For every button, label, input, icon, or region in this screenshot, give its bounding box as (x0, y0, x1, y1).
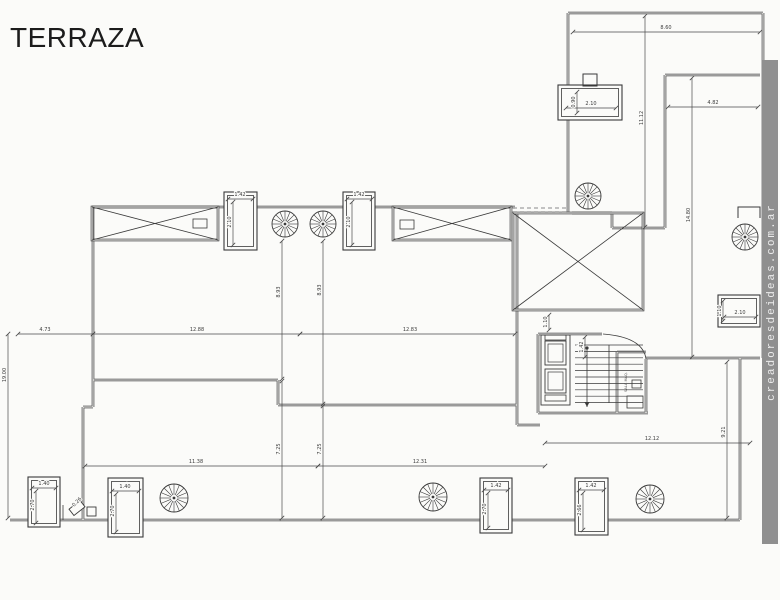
floor-plan-canvas: TERRAZA 8.604.8211.1214.802.100.902.101.… (0, 0, 780, 600)
dimension-label: 2.66 (577, 504, 583, 515)
dimension-label: 4.82 (707, 100, 718, 106)
dimension-label: 9.21 (721, 426, 727, 437)
dimension-label: 1.42 (353, 192, 364, 198)
dimension-label: 8.93 (276, 286, 282, 297)
spiral-center (432, 496, 435, 499)
rooftop-hatch (583, 74, 597, 86)
machine-room-label: SALA MAQ. (624, 372, 628, 392)
watermark-text: creadoresdeideas.com.ar (766, 203, 778, 401)
dimension-label: 8.60 (660, 25, 671, 31)
small-box (87, 507, 96, 516)
spiral-stair-icon (636, 485, 664, 513)
dimension-label: 14.80 (686, 208, 692, 222)
dimension-label: 8.93 (317, 284, 323, 295)
dimension-label: 1.42 (579, 341, 585, 352)
dimension-label: 1.42 (490, 483, 501, 489)
skylight-tab (193, 219, 207, 228)
spiral-stair-icon (160, 484, 188, 512)
dimension-label: 12.83 (403, 327, 417, 333)
machine-room-box-small (632, 380, 641, 388)
elevator-car-inner (548, 372, 563, 390)
stair-direction-start (585, 346, 588, 349)
spiral-stair-icon (732, 224, 758, 250)
elevator-car-inner (548, 344, 563, 362)
page-title: TERRAZA (10, 22, 144, 54)
dimension-label: 2.70 (110, 505, 116, 516)
walls-core-layer (10, 13, 763, 520)
floor-plan-svg: 8.604.8211.1214.802.100.902.101.101.422.… (0, 0, 780, 600)
spiral-center (587, 195, 590, 198)
spiral-center (744, 236, 747, 239)
dimension-label: 2.70 (482, 503, 488, 514)
watermark: creadoresdeideas.com.ar (762, 60, 778, 544)
machine-room-box (627, 396, 643, 408)
dimension-label: 2.10 (585, 101, 596, 107)
dimension-label: 1.42 (234, 192, 245, 198)
dimension-label: 1.10 (717, 305, 723, 316)
spiral-stair-icon (310, 211, 336, 237)
dimension-label: 2.10 (346, 216, 352, 227)
dimension-label: 2.10 (227, 216, 233, 227)
elevator-sill (545, 395, 566, 401)
dimension-label: 12.31 (413, 459, 427, 465)
spiral-center (173, 497, 176, 500)
spiral-center (284, 223, 287, 226)
stair-direction-arrow (585, 402, 590, 407)
spiral-stair-icon (575, 183, 601, 209)
dimension-label: 1.10 (543, 316, 549, 327)
stair-landing (738, 207, 760, 218)
dimension-label: 0.90 (571, 96, 577, 107)
dimension-label: 1.42 (585, 483, 596, 489)
dimension-label: 1.40 (119, 484, 130, 490)
door-swing-arc (603, 334, 646, 359)
dimension-label: 11.12 (639, 111, 645, 125)
dimension-label: 2.70 (30, 499, 36, 510)
dimension-label: 12.12 (645, 436, 659, 442)
elevator-sill (545, 335, 566, 340)
skylight-tab (400, 220, 414, 229)
spiral-stair-icon (272, 211, 298, 237)
spiral-center (649, 498, 652, 501)
dimension-label: 2.10 (734, 310, 745, 316)
walls-layer (10, 13, 763, 520)
spiral-center (322, 223, 325, 226)
dimension-label: 19.00 (2, 368, 8, 382)
dimension-label: 12.88 (190, 327, 204, 333)
dimension-label: 1.40 (38, 481, 49, 487)
dimension-label: 7.25 (276, 443, 282, 454)
dimensions-layer: 8.604.8211.1214.802.100.902.101.101.422.… (2, 14, 762, 534)
dimension-label: 7.25 (317, 443, 323, 454)
dimension-label: 11.38 (189, 459, 203, 465)
detail-layer (28, 74, 760, 537)
spiral-stair-icon (419, 483, 447, 511)
dimension-label: 4.73 (39, 327, 50, 333)
